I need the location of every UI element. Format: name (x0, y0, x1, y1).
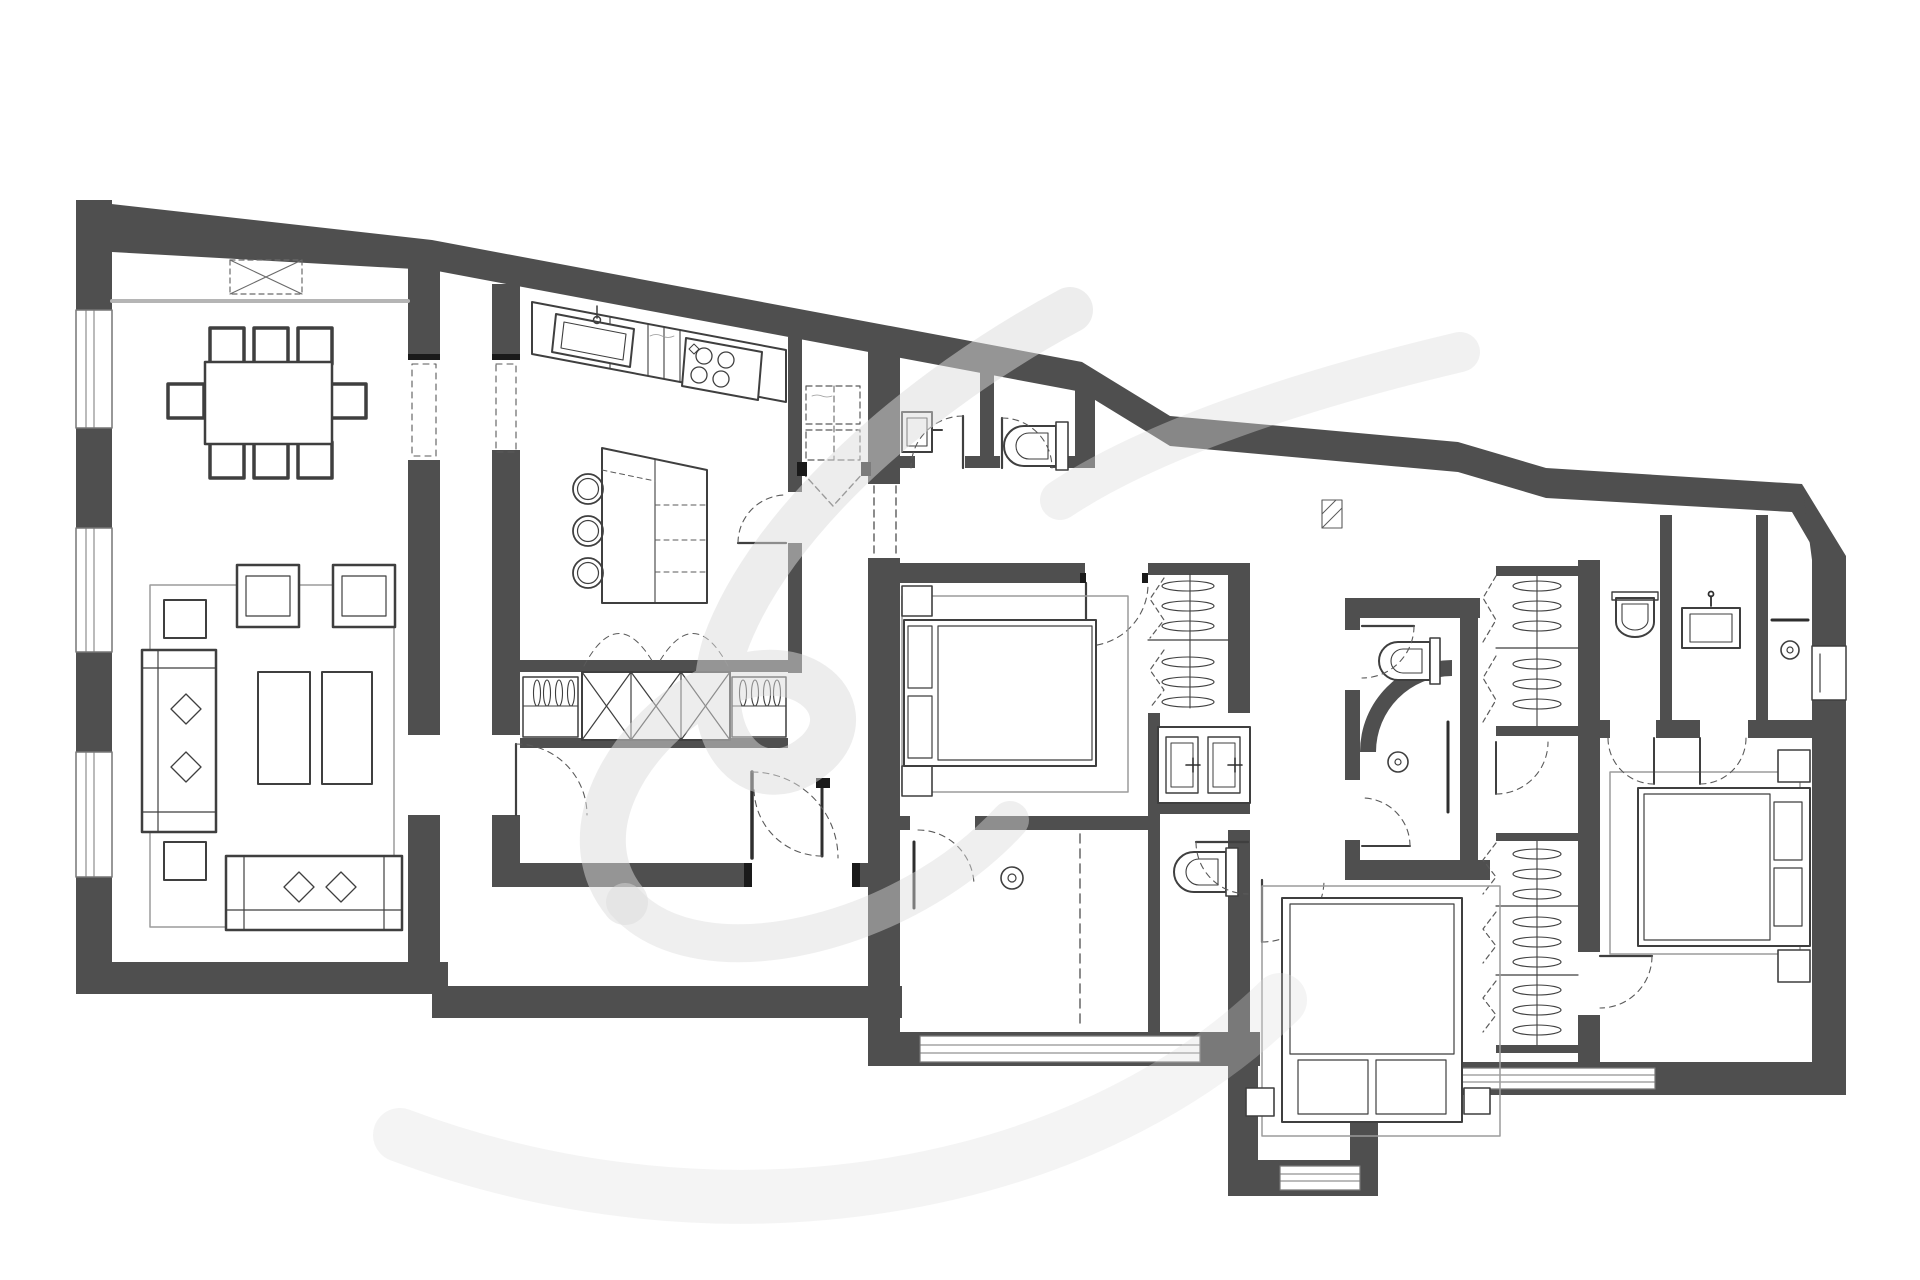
midbath-toilet-tank (1430, 638, 1440, 684)
hanging-clothes-h (1162, 657, 1214, 667)
wall-wcrow-south-a (900, 456, 915, 468)
rightbath-faucet (1709, 592, 1714, 607)
jamb-cap (1142, 573, 1148, 583)
bar-stool-inner (578, 479, 599, 500)
wall-wc-east (1075, 390, 1095, 468)
wall-rightbath-divider-2 (1756, 515, 1768, 738)
wall-left-pier-3 (76, 652, 112, 752)
dining-chair (210, 328, 244, 364)
wall-top-living (76, 200, 432, 270)
bar-stool-inner (578, 563, 599, 584)
wall-midbath-north (1345, 598, 1480, 618)
coffee-table (258, 672, 310, 784)
wc-toilet-tank (1056, 422, 1068, 470)
dining-chair (254, 328, 288, 364)
rightbath-drain-center (1787, 647, 1793, 653)
appliance-label (812, 395, 832, 397)
hanging-clothes-h (1162, 677, 1214, 687)
nightstand (1778, 750, 1810, 782)
wall-masterbed-north (900, 563, 1085, 583)
wall-vestibule-bottom (432, 986, 902, 1018)
pocket-door-kitchen (496, 364, 516, 452)
wall-step-right (1458, 442, 1546, 498)
wall-left-pier-2 (76, 428, 112, 528)
dining-chair (298, 328, 332, 364)
wall-living-right-2 (408, 460, 440, 735)
wall-rightbath-south-c (1748, 720, 1812, 738)
dining-chair (254, 442, 288, 478)
hanging-clothes-h (1162, 621, 1214, 631)
wall-rightbath-south-b (1656, 720, 1700, 738)
wall-rightbed-west-3 (1578, 1015, 1600, 1062)
jamb-cap (852, 863, 860, 887)
wall-closet-upper-top (1496, 566, 1578, 576)
wall-closet-lower-top (1496, 833, 1578, 841)
bar-stool-inner (578, 521, 599, 542)
midbath-shower-drain (1388, 752, 1408, 772)
window-master-bottom (920, 1036, 1200, 1062)
midbath-shower-drain-center (1395, 759, 1401, 765)
nightstand (1246, 1088, 1274, 1116)
sofa-west (142, 650, 216, 832)
side-table (164, 600, 206, 638)
hanging-clothes-h (1162, 697, 1214, 707)
closet-upper-accordion (1483, 576, 1496, 642)
rightbath-door-arc (1608, 738, 1654, 784)
wall-living-right-1 (408, 252, 440, 360)
wall-top-far-right (1546, 468, 1820, 560)
wall-rightbath-divider-1 (1660, 515, 1672, 738)
jamb-cap (744, 863, 752, 887)
dining-chair (330, 384, 366, 418)
dining-chair (210, 442, 244, 478)
rightbath-door-arc (1700, 738, 1746, 784)
wall-master-west-2 (868, 558, 900, 863)
midbath-shower-door-arc (1362, 798, 1410, 846)
wall-living-right-3 (408, 815, 440, 962)
closet-niche-x (230, 260, 302, 294)
jamb-cap (1080, 573, 1086, 583)
wall-masterwc-west (1148, 830, 1160, 1032)
wall-closet-lower-bottom (1496, 1045, 1578, 1053)
closet-lower-accordion (1483, 981, 1496, 1032)
jamb-cap (408, 354, 440, 360)
midbed-bed (1282, 898, 1462, 1122)
wall-living-bottom (76, 962, 448, 994)
hanging-clothes-h (1162, 601, 1214, 611)
wall-kitchen-left-2 (492, 450, 520, 735)
wall-left-pier-1 (76, 200, 112, 310)
pocket-door-living (412, 364, 436, 456)
floor-plan-svg (0, 0, 1920, 1280)
closet-upper-accordion (1483, 656, 1496, 722)
wall-bed-bath-divider-a (900, 816, 910, 830)
jamb-cap (492, 354, 520, 360)
nightstand (1464, 1088, 1490, 1114)
nightstand (902, 586, 932, 616)
wall-rightbed-west-2 (1578, 738, 1600, 952)
jamb-cap (797, 462, 807, 476)
coffee-table (322, 672, 372, 784)
wall-kitchen-left-1 (492, 284, 520, 360)
master-bed (904, 620, 1096, 766)
wall-corridor-east-2 (1345, 690, 1360, 780)
watermark-stroke (1060, 352, 1460, 500)
closet-lower-accordion (1483, 912, 1496, 963)
radiator-niche (1812, 646, 1846, 700)
hall-door-arc (754, 788, 822, 856)
wall-midbath-east (1460, 598, 1478, 880)
side-table (164, 842, 206, 880)
rightbed-bed (1638, 788, 1810, 946)
nightstand (1778, 950, 1810, 982)
wardrobe-accordion-door (1150, 650, 1164, 708)
pocket-door-track (874, 486, 896, 556)
passage-door-arc (1496, 742, 1548, 794)
floor-plan-page (0, 0, 1920, 1280)
dining-table (205, 362, 332, 444)
nightstand (902, 766, 932, 796)
wall-rightbath-south-a (1600, 720, 1610, 738)
dining-chair (298, 442, 332, 478)
wall-rightbed-west-1 (1578, 560, 1600, 738)
window-midbed-bottom (1280, 1166, 1360, 1190)
wall-closet-upper-bottom (1496, 726, 1578, 736)
hanging-clothes-h (1162, 581, 1214, 591)
wall-wardrobe-east (1228, 563, 1250, 713)
wall-wardrobe-top (1148, 563, 1230, 575)
living-hall-door-arc (516, 744, 587, 815)
dining-chair (168, 384, 204, 418)
masterwc-toilet-tank (1226, 848, 1238, 896)
sofa-south (226, 856, 402, 930)
rightbath-drain (1781, 641, 1799, 659)
shower-drain (1001, 867, 1023, 889)
shower-drain-center (1008, 874, 1016, 882)
laundry-appliance (806, 386, 860, 424)
rightbed-door-arc (1600, 956, 1652, 1008)
